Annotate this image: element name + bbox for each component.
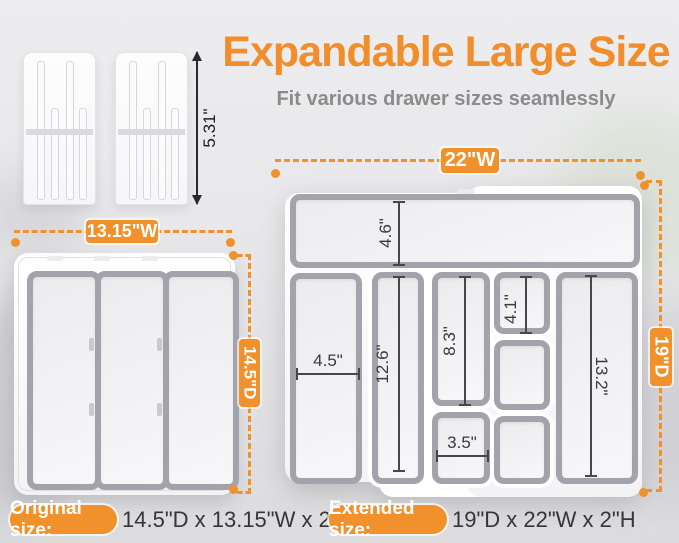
compact-tray-compartment bbox=[27, 271, 101, 490]
dimension-end-dot bbox=[271, 169, 280, 178]
measure-label-col4-upper: 4.1" bbox=[501, 294, 521, 324]
dimension-end-dot bbox=[639, 488, 648, 497]
original-size-pill: Original size: bbox=[10, 505, 117, 534]
tray-tab bbox=[47, 256, 63, 261]
page-subtitle: Fit various drawer sizes seamlessly bbox=[213, 88, 679, 111]
dimension-end-dot bbox=[229, 485, 238, 494]
dimension-end-dot bbox=[226, 238, 235, 247]
expanded-depth-dimension-badge: 19"D bbox=[650, 328, 672, 386]
measure-line-top-depth bbox=[398, 201, 400, 266]
divider-slot bbox=[51, 108, 59, 200]
tray-tab bbox=[142, 256, 158, 261]
compact-width-dimension-badge: 13.15"W bbox=[86, 220, 158, 243]
extended-size-value: 19"D x 22"W x 2"H bbox=[452, 506, 636, 534]
compact-tray-compartment bbox=[95, 271, 169, 490]
expanded-tray-compartment-col1 bbox=[290, 273, 362, 484]
measure-line-col3-upper bbox=[464, 276, 466, 406]
divider-slide-rail bbox=[26, 129, 93, 135]
product-dimension-infographic: 5.31" Expandable Large Size Fit various … bbox=[0, 0, 679, 543]
divider-height-dimension-line bbox=[196, 52, 198, 204]
extended-size-pill: Extended size: bbox=[329, 505, 447, 534]
expanded-width-dimension-badge: 22"W bbox=[441, 148, 499, 173]
measure-label-top-depth: 4.6" bbox=[376, 218, 396, 248]
divider-panel-right bbox=[115, 52, 188, 205]
expansion-notch bbox=[157, 338, 162, 351]
original-size-value: 14.5"D x 13.15"W x 2"H bbox=[122, 506, 355, 534]
dimension-end-dot bbox=[229, 251, 238, 260]
measure-label-col2-length: 12.6" bbox=[373, 344, 393, 383]
expanded-tray-top-compartment bbox=[290, 194, 640, 268]
divider-slot bbox=[143, 108, 151, 200]
dimension-end-dot bbox=[11, 238, 20, 247]
measure-line-col2-length bbox=[398, 276, 400, 472]
measure-line-col4-upper bbox=[525, 276, 527, 334]
compact-tray-compartment bbox=[163, 271, 239, 490]
divider-slide-rail bbox=[118, 129, 185, 135]
divider-height-dimension-label: 5.31" bbox=[200, 108, 220, 147]
compact-depth-dimension-badge: 14.5"D bbox=[239, 339, 260, 407]
measure-label-col3-upper: 8.3" bbox=[440, 326, 460, 356]
compact-tray bbox=[14, 253, 235, 495]
dimension-end-dot bbox=[636, 171, 645, 180]
page-title: Expandable Large Size bbox=[213, 28, 679, 77]
divider-slot bbox=[171, 108, 179, 200]
divider-slot bbox=[79, 108, 87, 200]
dimension-end-dot bbox=[640, 181, 649, 190]
tray-tab bbox=[94, 256, 110, 261]
measure-line-col3-lower bbox=[436, 455, 489, 457]
expanded-tray-compartment-col4-middle bbox=[494, 340, 550, 410]
expansion-notch bbox=[157, 403, 162, 416]
divider-panel-left bbox=[23, 52, 96, 205]
expansion-notch bbox=[89, 403, 94, 416]
measure-line-col1-width bbox=[296, 373, 360, 375]
measure-label-col3-lower: 3.5" bbox=[447, 433, 477, 453]
expanded-tray-compartment-col4-lower bbox=[494, 416, 550, 484]
measure-label-col5-length: 13.2" bbox=[591, 356, 611, 395]
expansion-notch bbox=[89, 338, 94, 351]
measure-label-col1-width: 4.5" bbox=[313, 351, 343, 371]
